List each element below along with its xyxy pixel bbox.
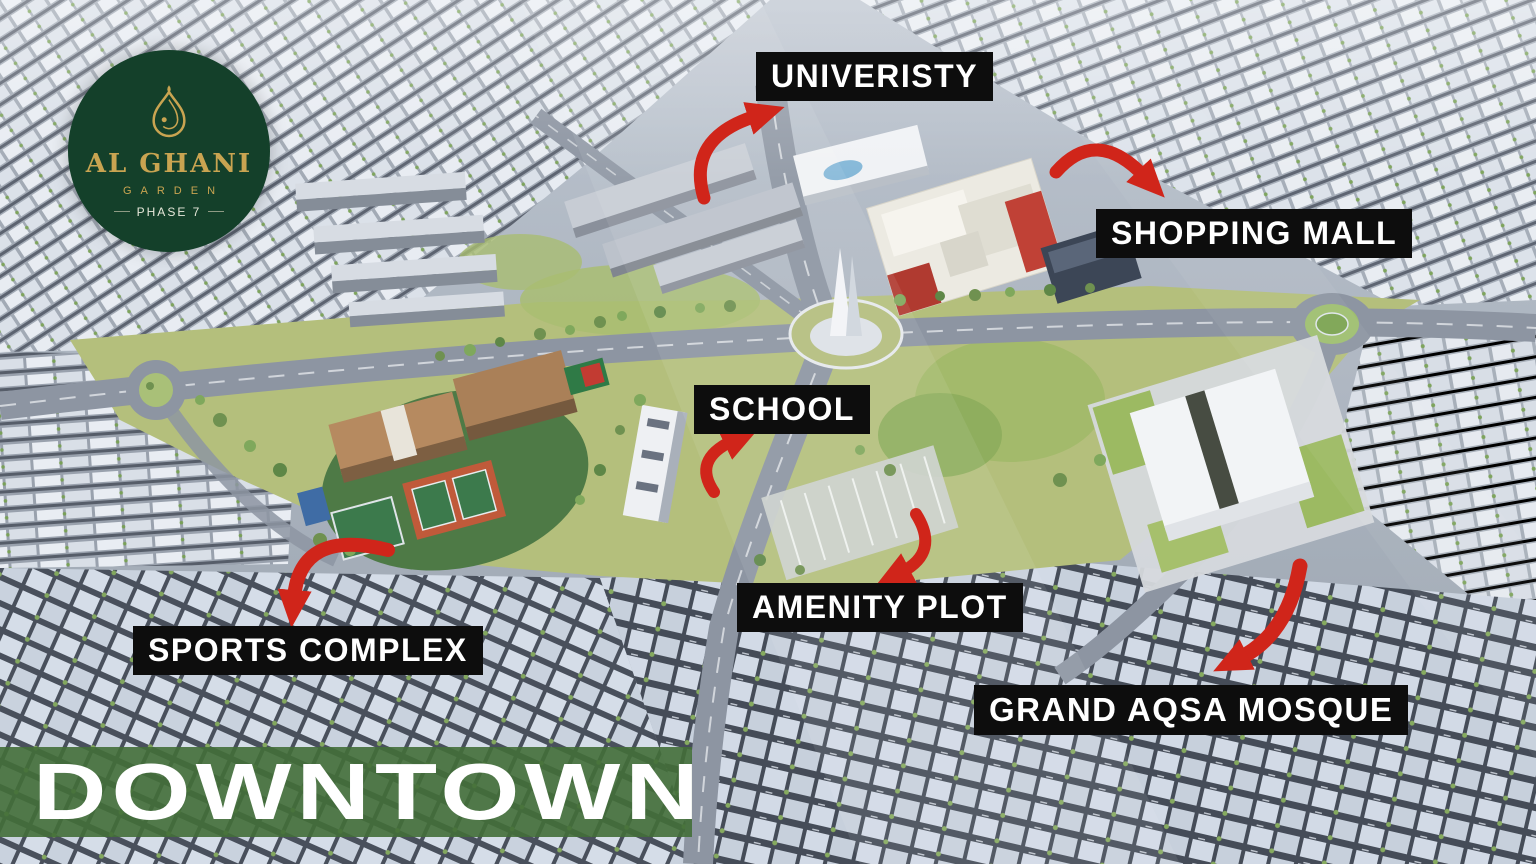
downtown-map-render: * — [0, 0, 1536, 864]
logo-phase-text: PHASE 7 — [137, 205, 202, 219]
label-shopping-mall: SHOPPING MALL — [1096, 209, 1412, 258]
lamp-icon — [146, 84, 192, 142]
label-sports-complex: SPORTS COMPLEX — [133, 626, 483, 675]
logo-phase: PHASE 7 — [114, 205, 225, 219]
al-ghani-logo: AL GHANI GARDEN PHASE 7 — [68, 50, 270, 252]
phase-left-dash — [114, 211, 130, 212]
logo-subtitle: GARDEN — [114, 185, 224, 197]
label-grand-aqsa-mosque: GRAND AQSA MOSQUE — [974, 685, 1408, 735]
logo-title: AL GHANI — [86, 149, 252, 179]
downtown-banner-text: DOWNTOWN — [0, 752, 704, 832]
downtown-banner: DOWNTOWN — [0, 747, 692, 837]
phase-right-dash — [208, 211, 224, 212]
label-amenity-plot: AMENITY PLOT — [737, 583, 1023, 632]
label-school: SCHOOL — [694, 385, 870, 434]
label-univeristy: UNIVERISTY — [756, 52, 993, 101]
left-roundabout — [126, 360, 186, 420]
